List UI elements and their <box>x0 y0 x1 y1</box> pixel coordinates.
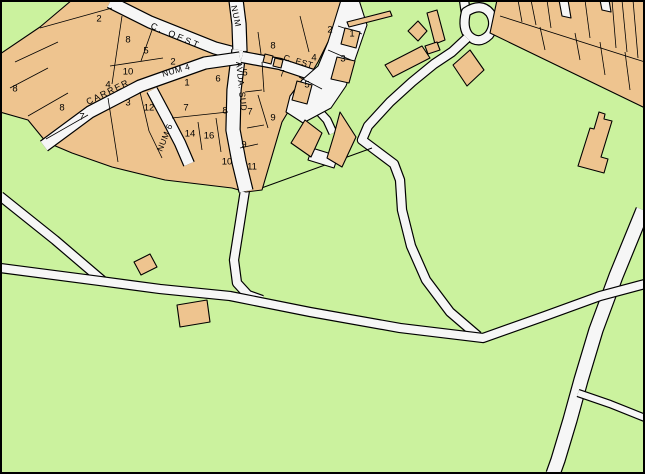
parcel-number: 7 <box>79 112 84 123</box>
parcel-number: 4 <box>105 80 110 91</box>
parcel-number: 2 <box>96 14 101 25</box>
map-viewport[interactable]: C. OESTNUMNUM 4CARRERNUM 6AVDA. SUDC. ES… <box>0 0 645 474</box>
parcel-number: 16 <box>204 131 215 142</box>
parcel-number: 11 <box>247 162 257 173</box>
parcel-number: 1 <box>184 78 189 89</box>
parcel-number: 4 <box>311 53 316 64</box>
parcel-number: 7 <box>247 107 252 118</box>
parcel-number: 2 <box>170 57 175 68</box>
parcel-number: 8 <box>59 103 64 114</box>
parcel-number: 5 <box>242 68 247 79</box>
parcel-number: 9 <box>270 113 275 124</box>
parcel-number: 3 <box>340 54 345 65</box>
parcel-number: 10 <box>123 67 134 78</box>
parcel-number: 7 <box>279 69 284 80</box>
building <box>177 300 210 327</box>
building <box>263 54 273 64</box>
parcel-number: 8 <box>270 41 275 52</box>
building <box>273 58 283 68</box>
parcel-number: 7 <box>183 103 188 114</box>
parcel-number: 14 <box>185 129 196 140</box>
parcel-number: 1 <box>349 29 354 40</box>
parcel-number: 8 <box>125 35 130 46</box>
parcel-number: 9 <box>241 140 246 151</box>
parcel-number: 5 <box>143 46 148 57</box>
parcel-number: 8 <box>222 106 227 117</box>
parcel-number: 3 <box>125 98 130 109</box>
parcel-number: 6 <box>215 74 220 85</box>
parcel-number: 5 <box>304 80 309 91</box>
parcel-number: 8 <box>12 84 17 95</box>
parcel-number: 12 <box>144 103 155 114</box>
map-canvas[interactable]: C. OESTNUMNUM 4CARRERNUM 6AVDA. SUDC. ES… <box>0 0 645 474</box>
parcel-number: 10 <box>222 157 233 168</box>
parcel-number: 2 <box>327 25 332 36</box>
